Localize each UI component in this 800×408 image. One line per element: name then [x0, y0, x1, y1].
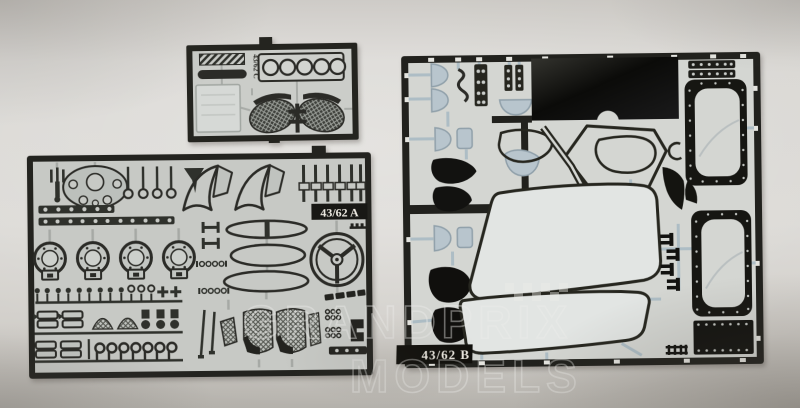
etched-panel-plate [196, 85, 241, 133]
etched-parts-scene: 43/62 C [0, 0, 800, 408]
watermark-line1: GRANDPRIX [243, 296, 573, 348]
tiny-comb [350, 223, 366, 229]
watermark-line2: MODELS [350, 350, 583, 402]
riveted-plate [693, 320, 753, 355]
fret-c: 43/62 C [186, 36, 359, 145]
windscreen-frame [469, 183, 661, 299]
photo-background: 43/62 C [0, 0, 800, 408]
bulkhead-plate-with-holes [63, 166, 127, 209]
door-window-frame-lower [691, 210, 752, 317]
dark-trim-bar [198, 69, 247, 79]
door-window-frame-upper [684, 79, 747, 186]
hatched-grille-strip [199, 53, 244, 65]
gauge-strip-five-holes [258, 53, 345, 81]
fret-a-label: 43/62 A [320, 205, 359, 219]
watermark: GRANDPRIX MODELS [243, 283, 583, 402]
